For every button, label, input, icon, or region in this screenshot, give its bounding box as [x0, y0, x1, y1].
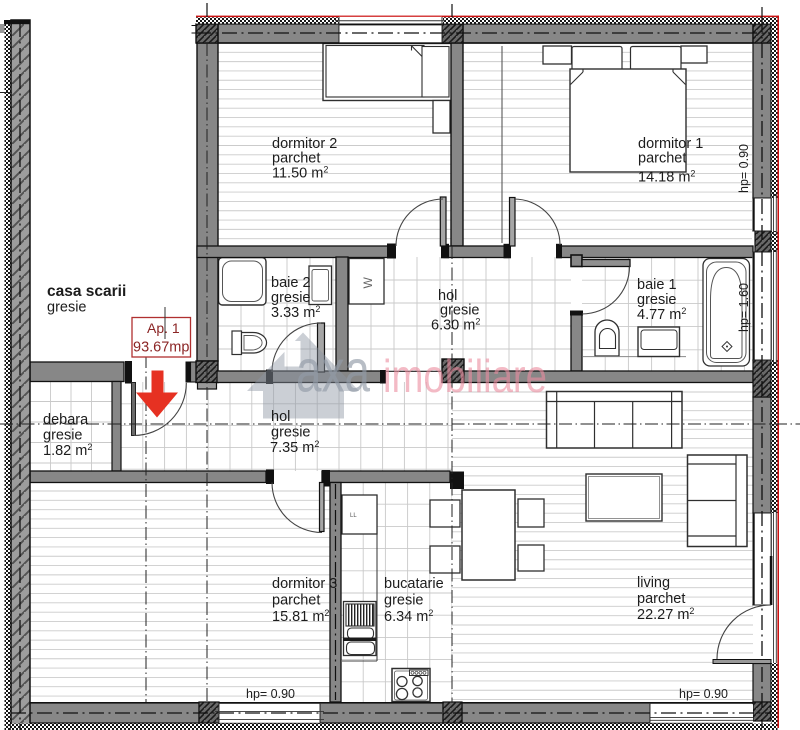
svg-text:6.34 m2: 6.34 m2	[384, 608, 433, 625]
svg-text:gresie: gresie	[43, 428, 83, 444]
svg-text:baie 2: baie 2	[271, 275, 311, 291]
svg-text:parchet: parchet	[272, 151, 320, 167]
svg-text:gresie: gresie	[440, 303, 480, 319]
svg-text:casa scarii: casa scarii	[47, 283, 126, 300]
svg-text:bucatarie: bucatarie	[384, 576, 444, 592]
svg-text:gresie: gresie	[637, 292, 677, 308]
svg-text:gresie: gresie	[384, 593, 424, 609]
svg-text:93.67mp: 93.67mp	[133, 340, 189, 356]
svg-text:parchet: parchet	[637, 591, 685, 607]
svg-text:14.18 m2: 14.18 m2	[638, 169, 695, 186]
svg-text:hol: hol	[271, 409, 290, 425]
svg-text:6.30 m2: 6.30 m2	[431, 317, 480, 334]
svg-text:Ap. 1: Ap. 1	[147, 320, 180, 336]
svg-text:imobiliare: imobiliare	[383, 350, 547, 402]
svg-text:15.81 m2: 15.81 m2	[272, 608, 329, 625]
svg-text:dormitor 1: dormitor 1	[638, 136, 703, 152]
svg-text:1.82 m2: 1.82 m2	[43, 442, 92, 459]
svg-text:hp= 1.60: hp= 1.60	[737, 283, 751, 332]
svg-text:4.77 m2: 4.77 m2	[637, 306, 686, 323]
svg-text:gresie: gresie	[47, 300, 87, 316]
svg-text:hp= 0.90: hp= 0.90	[246, 687, 295, 701]
svg-text:7.35 m2: 7.35 m2	[270, 439, 319, 456]
svg-text:W: W	[361, 277, 375, 289]
svg-text:3.33 m2: 3.33 m2	[271, 304, 320, 321]
svg-text:axa: axa	[296, 338, 370, 405]
svg-text:22.27 m2: 22.27 m2	[637, 606, 694, 623]
svg-text:LL: LL	[350, 513, 357, 519]
svg-text:parchet: parchet	[638, 151, 686, 167]
svg-text:gresie: gresie	[271, 290, 311, 306]
svg-text:11.50 m2: 11.50 m2	[272, 164, 328, 181]
svg-text:hp= 0.90: hp= 0.90	[737, 144, 751, 193]
svg-text:living: living	[637, 575, 670, 591]
svg-text:gresie: gresie	[271, 425, 311, 441]
svg-text:parchet: parchet	[272, 593, 320, 609]
svg-text:dormitor 2: dormitor 2	[272, 136, 337, 152]
svg-text:baie 1: baie 1	[637, 277, 677, 293]
svg-text:dormitor 3: dormitor 3	[272, 576, 337, 592]
svg-text:debara: debara	[43, 412, 89, 428]
svg-text:hp= 0.90: hp= 0.90	[679, 687, 728, 701]
